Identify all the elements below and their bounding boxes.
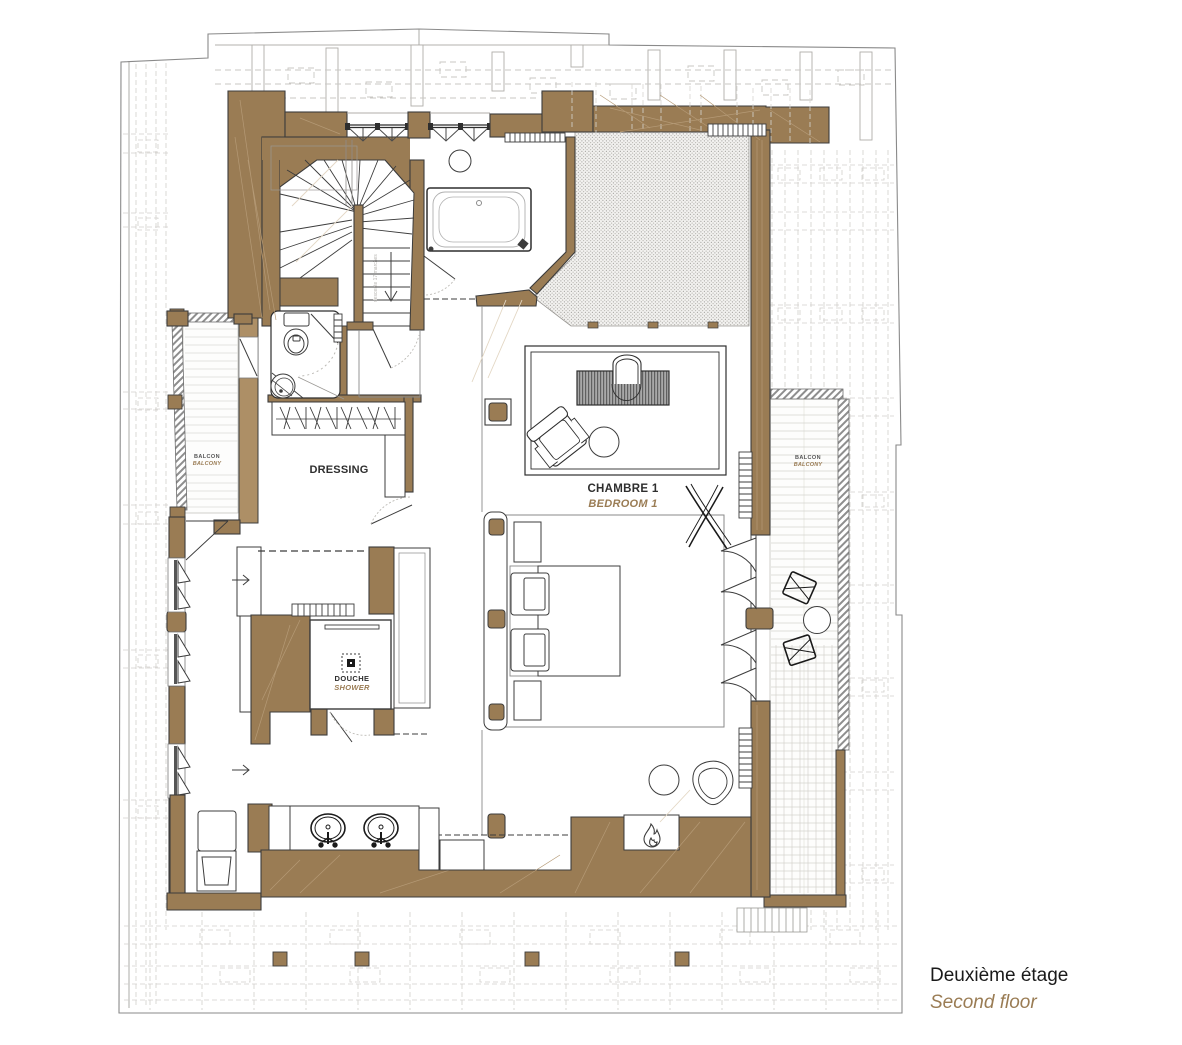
svg-text:CHAMBRE 1: CHAMBRE 1 [587,483,658,495]
svg-text:BALCONY: BALCONY [193,461,223,467]
svg-text:Second floor: Second floor [930,992,1037,1013]
svg-text:SHOWER: SHOWER [334,683,370,692]
svg-text:BALCONY: BALCONY [794,462,824,468]
svg-text:DRESSING: DRESSING [309,464,368,476]
svg-text:Deuxième étage: Deuxième étage [930,965,1068,986]
svg-text:BALCON: BALCON [795,455,821,461]
svg-text:descente 17 marches: descente 17 marches [373,254,379,302]
svg-text:BEDROOM 1: BEDROOM 1 [588,498,657,510]
svg-text:DOUCHE: DOUCHE [335,674,370,683]
svg-text:BALCON: BALCON [194,454,220,460]
